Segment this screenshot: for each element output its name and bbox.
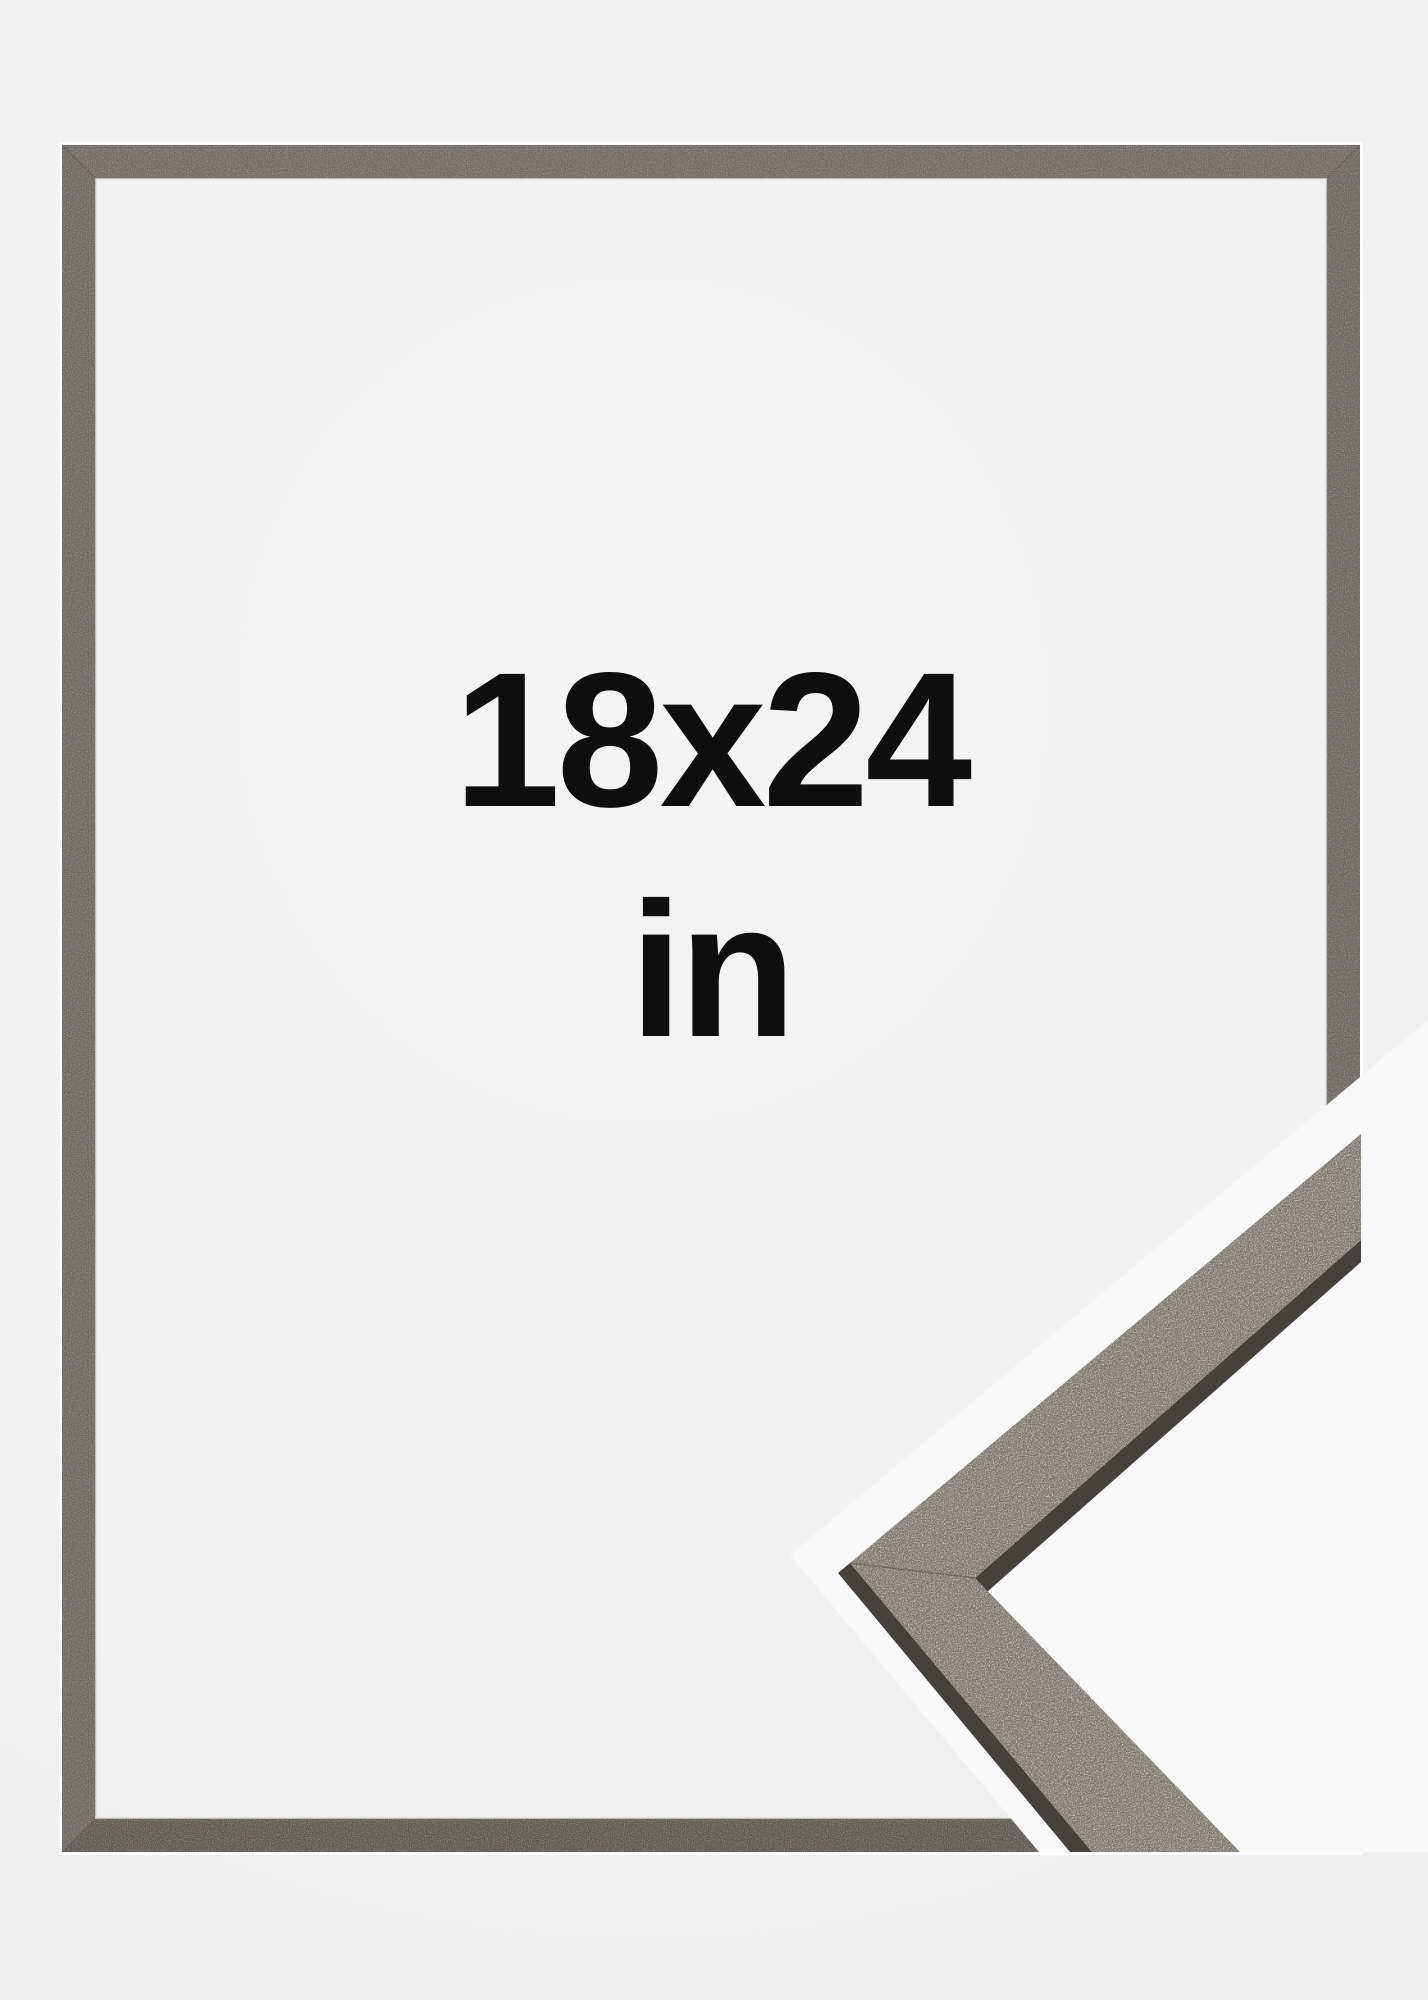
product-photo: 18x24 in bbox=[0, 0, 1428, 2000]
size-label-unit: in bbox=[0, 855, 1422, 1085]
frame-top-bar bbox=[62, 145, 1360, 178]
size-label: 18x24 in bbox=[0, 625, 1422, 1085]
size-label-dimensions: 18x24 bbox=[0, 625, 1422, 855]
